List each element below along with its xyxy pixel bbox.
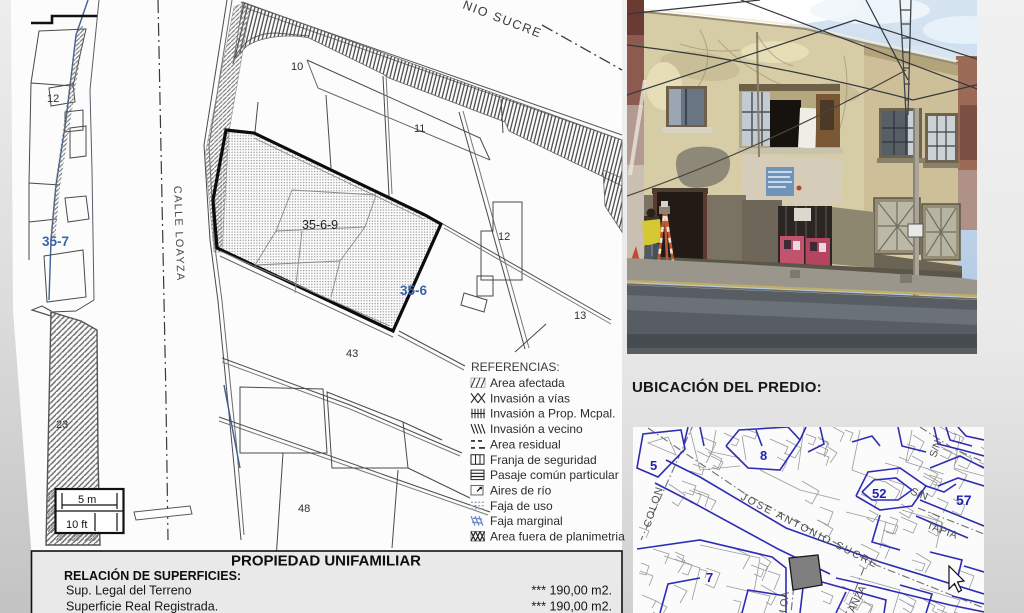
svg-text:8: 8 [760,448,767,463]
svg-text:23: 23 [56,419,68,431]
svg-text:11: 11 [414,123,425,135]
svg-text:13: 13 [574,310,586,322]
svg-text:UBICACIÓN DEL PREDIO:: UBICACIÓN DEL PREDIO: [632,378,822,396]
svg-text:RELACIÓN DE SUPERFICIES:: RELACIÓN DE SUPERFICIES: [64,568,241,583]
svg-text:Invasión a vías: Invasión a vías [490,391,570,405]
svg-text:Franja de seguridad: Franja de seguridad [490,453,597,467]
svg-text:10: 10 [291,61,303,73]
svg-text:35-7: 35-7 [42,234,69,249]
svg-text:Faja marginal: Faja marginal [490,514,563,528]
svg-text:5: 5 [650,458,657,473]
svg-text:Area residual: Area residual [490,437,561,451]
svg-text:Area afectada: Area afectada [490,376,565,390]
svg-text:Area fuera de planimetria: Area fuera de planimetria [490,530,625,544]
svg-text:Invasión a Prop. Mcpal.: Invasión a Prop. Mcpal. [490,407,615,421]
svg-text:57: 57 [956,492,972,508]
svg-text:Superficie Real Registrada.: Superficie Real Registrada. [66,600,218,613]
svg-text:12: 12 [498,231,510,243]
svg-text:12: 12 [47,93,59,105]
svg-text:Pasaje común particular: Pasaje común particular [490,468,619,482]
svg-text:PROPIEDAD UNIFAMILIAR: PROPIEDAD UNIFAMILIAR [231,553,421,570]
svg-text:43: 43 [346,348,358,360]
svg-text:Sup. Legal del Terreno: Sup. Legal del Terreno [66,584,192,598]
svg-text:*** 190,00 m2.: *** 190,00 m2. [531,600,612,613]
svg-text:35-6-9: 35-6-9 [302,218,338,232]
svg-text:52: 52 [872,486,886,501]
svg-text:Invasión a vecino: Invasión a vecino [490,422,583,436]
svg-text:*** 190,00 m2.: *** 190,00 m2. [531,584,612,598]
svg-text:Faja de uso: Faja de uso [490,499,553,513]
svg-text:REFERENCIAS:: REFERENCIAS: [471,360,560,374]
svg-text:5 m: 5 m [78,494,96,506]
svg-text:35-6: 35-6 [400,283,428,298]
svg-text:7: 7 [706,570,713,585]
svg-text:10 ft: 10 ft [66,519,87,531]
svg-text:Aires de río: Aires de río [490,483,552,497]
svg-text:48: 48 [298,503,310,515]
